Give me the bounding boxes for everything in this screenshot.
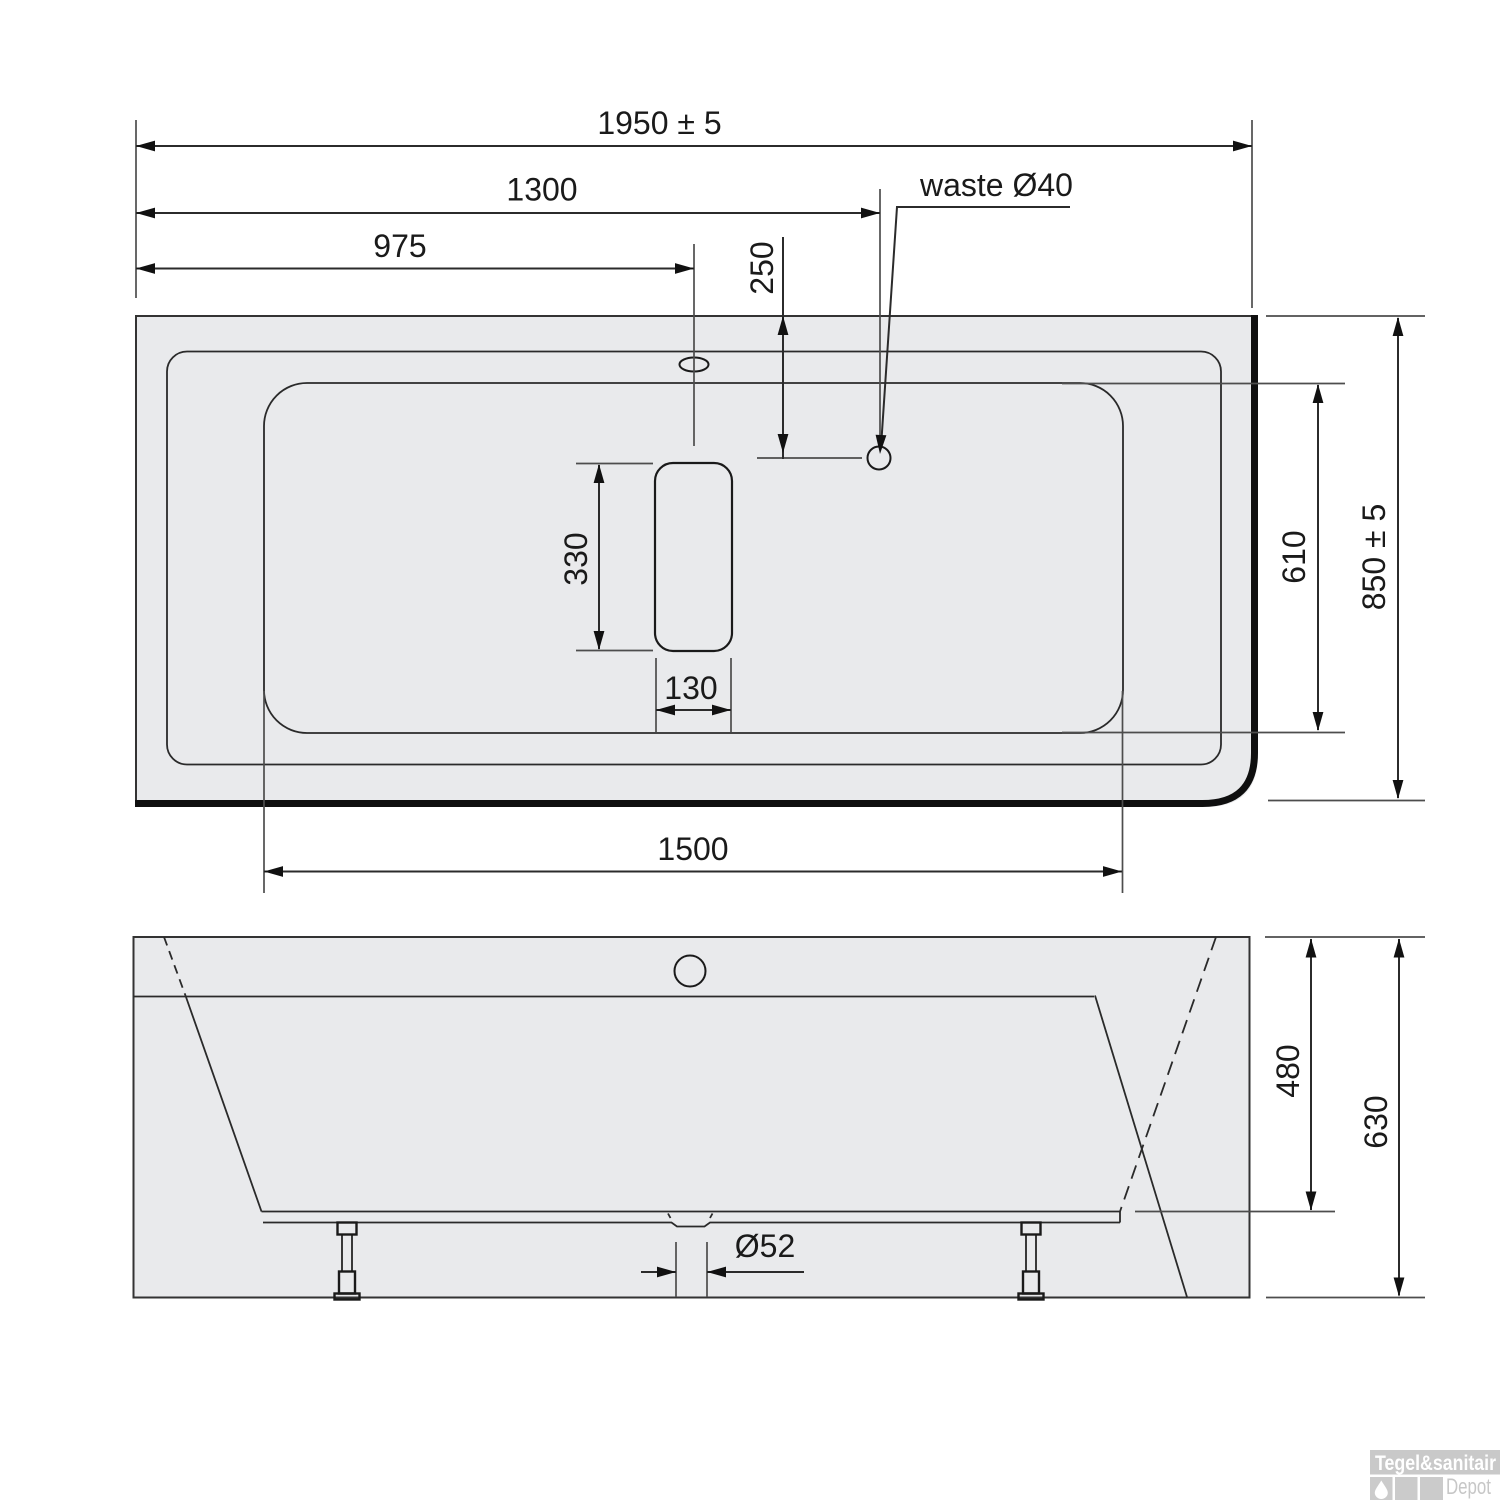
svg-text:1950 ± 5: 1950 ± 5 — [597, 105, 721, 141]
svg-text:250: 250 — [744, 241, 780, 294]
svg-text:850 ± 5: 850 ± 5 — [1356, 504, 1392, 611]
svg-text:330: 330 — [558, 532, 594, 585]
svg-text:Depot: Depot — [1446, 1474, 1491, 1499]
svg-text:975: 975 — [373, 228, 426, 264]
svg-text:1300: 1300 — [506, 172, 577, 208]
svg-text:130: 130 — [664, 670, 717, 706]
svg-text:630: 630 — [1358, 1095, 1394, 1148]
svg-text:Tegel&sanitair: Tegel&sanitair — [1375, 1452, 1496, 1475]
svg-text:480: 480 — [1270, 1044, 1306, 1097]
svg-text:610: 610 — [1276, 530, 1312, 583]
svg-text:waste Ø40: waste Ø40 — [919, 167, 1073, 203]
svg-text:1500: 1500 — [657, 831, 728, 867]
svg-text:Ø52: Ø52 — [735, 1228, 795, 1264]
